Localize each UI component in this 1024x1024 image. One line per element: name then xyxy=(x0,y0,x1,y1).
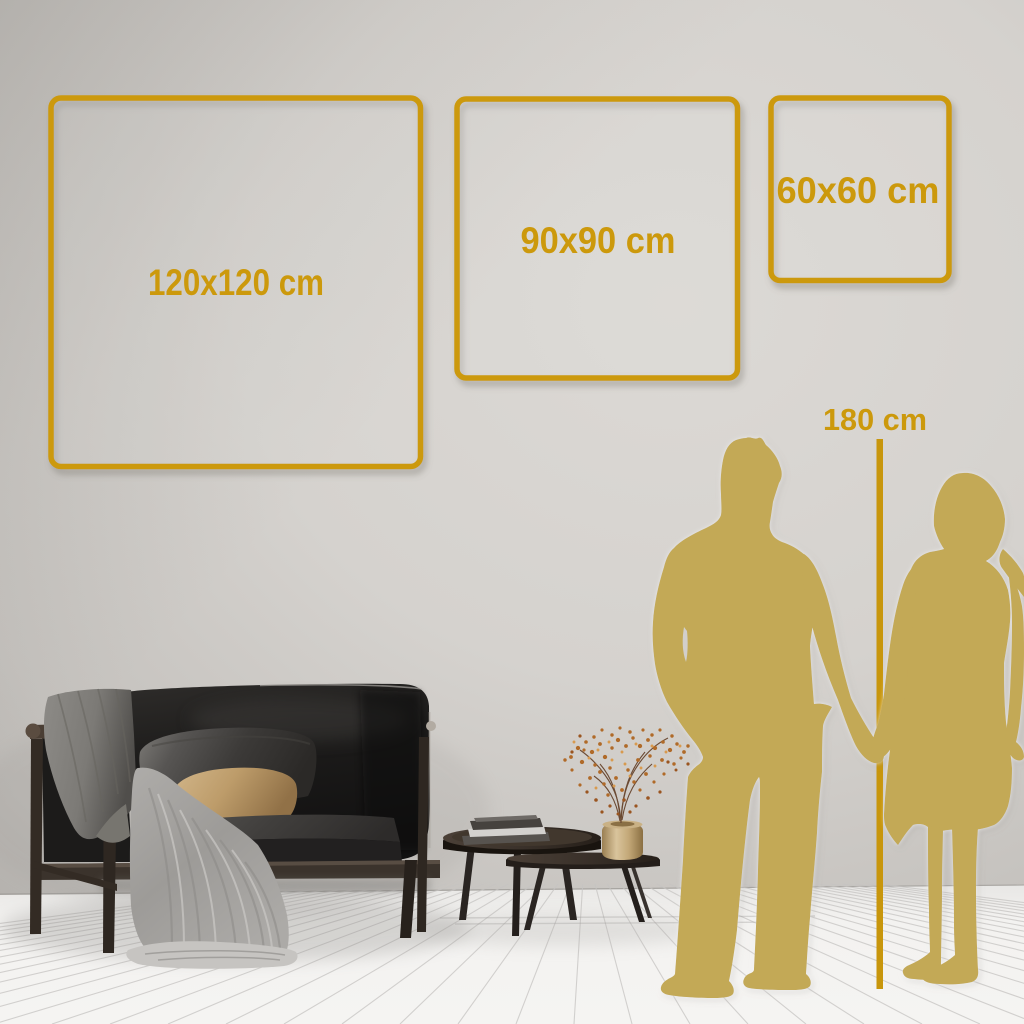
svg-text:120x120 cm: 120x120 cm xyxy=(148,262,324,303)
svg-text:90x90 cm: 90x90 cm xyxy=(521,220,676,261)
svg-text:180 cm: 180 cm xyxy=(823,402,927,437)
svg-text:60x60 cm: 60x60 cm xyxy=(777,170,940,211)
